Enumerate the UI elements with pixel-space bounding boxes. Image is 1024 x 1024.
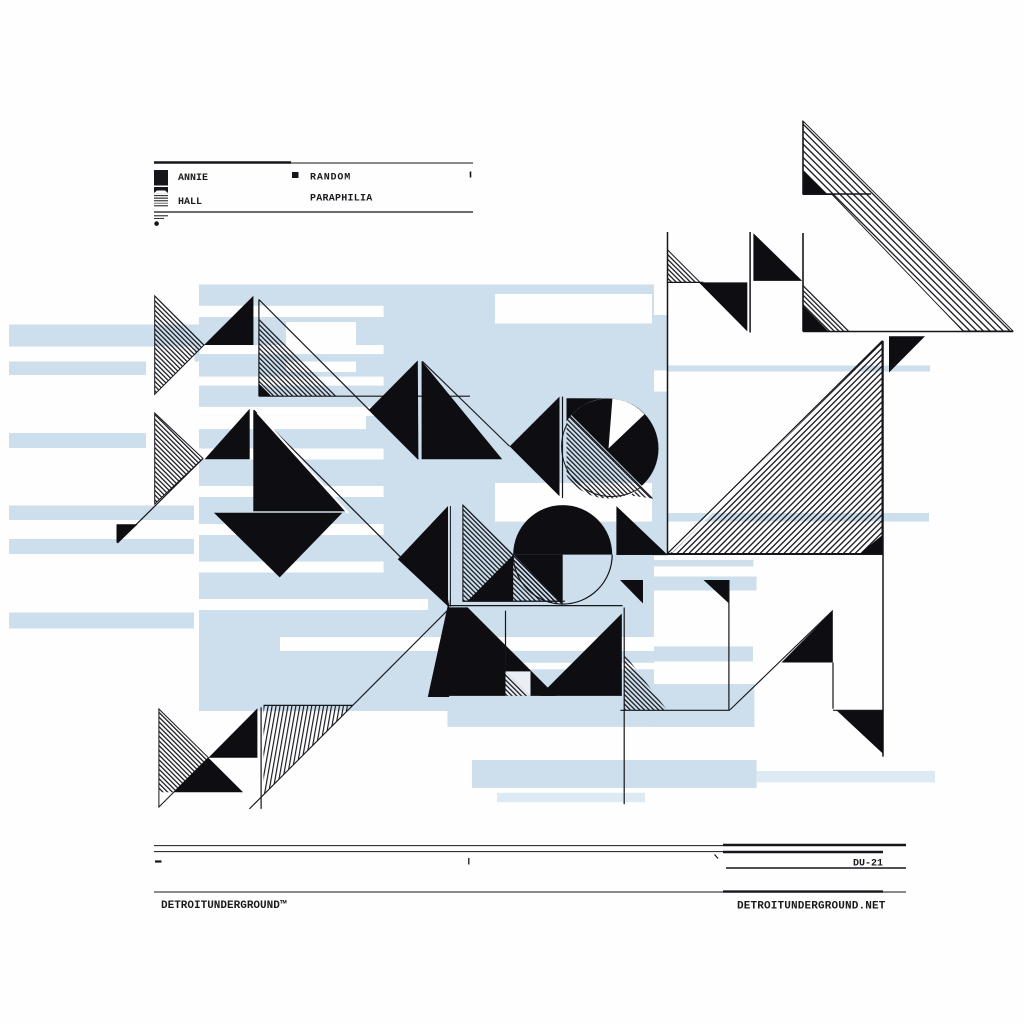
svg-text:RANDOM: RANDOM — [310, 173, 351, 184]
svg-text:DETROITUNDERGROUND.NET: DETROITUNDERGROUND.NET — [737, 901, 886, 913]
svg-text:HALL: HALL — [178, 197, 202, 208]
svg-text:PARAPHILIA: PARAPHILIA — [310, 194, 373, 205]
svg-text:ANNIE: ANNIE — [178, 173, 208, 184]
svg-text:DETROITUNDERGROUND™: DETROITUNDERGROUND™ — [161, 900, 287, 912]
